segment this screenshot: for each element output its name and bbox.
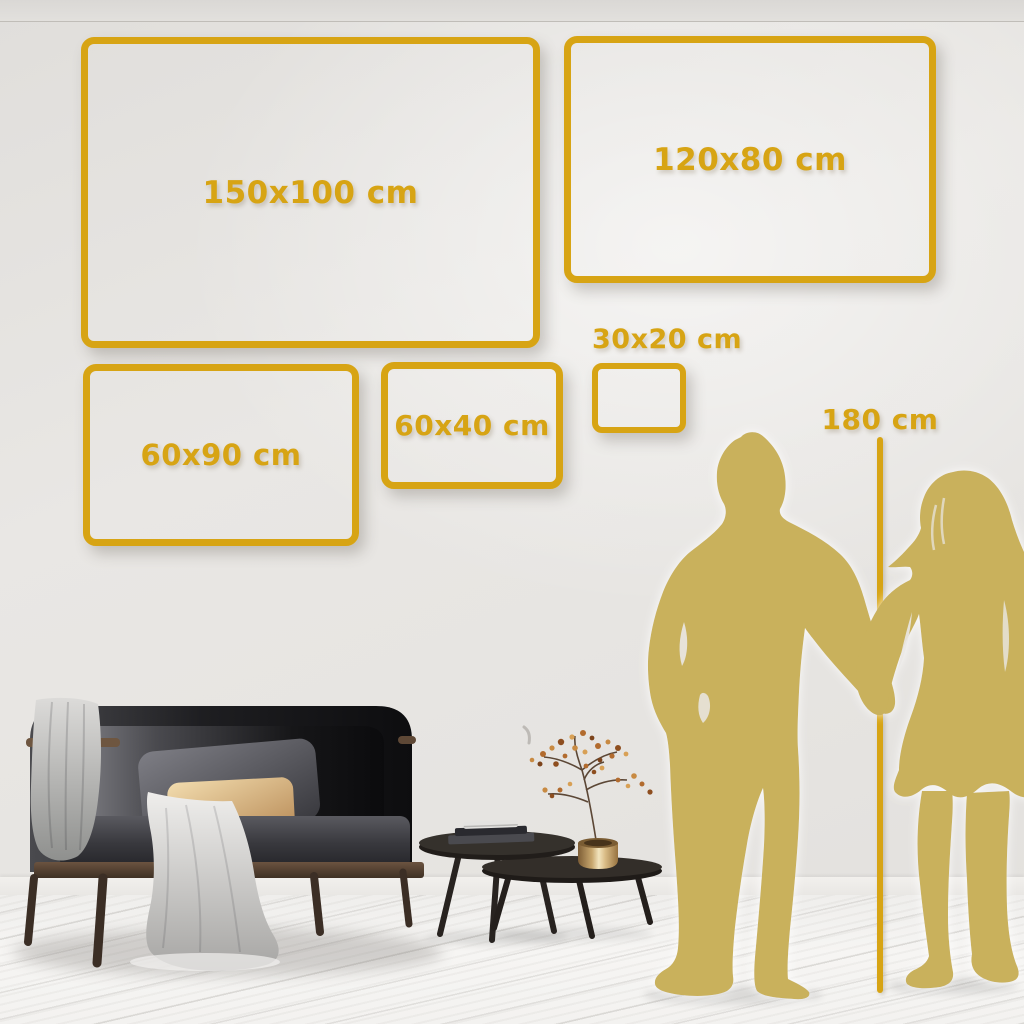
- room-scene: [0, 0, 1024, 1024]
- books-stack: [448, 819, 535, 844]
- man-silhouette: [648, 432, 895, 999]
- woman-silhouette: [856, 470, 1024, 797]
- sofa: [13, 698, 443, 976]
- sofa-arm-rail-right: [398, 736, 416, 744]
- couple-silhouettes: [648, 432, 1024, 999]
- woman-left-leg: [906, 791, 953, 988]
- wall-shadow-mark: [524, 727, 529, 743]
- size-guide-scene: 150x100 cm 120x80 cm 60x90 cm 60x40 cm 3…: [0, 0, 1024, 1024]
- woman-right-leg: [966, 791, 1019, 983]
- coffee-tables: [419, 730, 662, 945]
